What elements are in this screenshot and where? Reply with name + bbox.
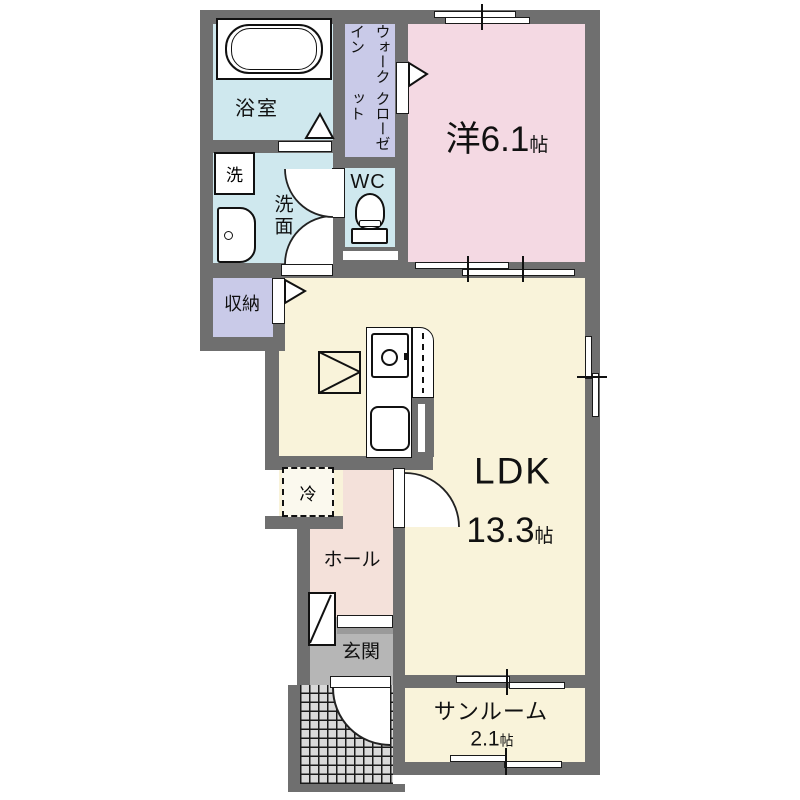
- storage-label: 収納: [224, 295, 260, 315]
- ldk-size-label: 13.3帖: [466, 512, 553, 551]
- symbols-overlay: [0, 0, 800, 800]
- wic-label-line1: ウォークイン: [344, 24, 395, 91]
- western-room-unit: 帖: [529, 135, 548, 156]
- ldk-label: LDK: [474, 452, 552, 493]
- storage-door-triangle-icon: [285, 280, 305, 303]
- wc-label: WC: [350, 171, 385, 193]
- wic-door-triangle-icon: [409, 63, 427, 86]
- cabinet-symbol-line2: [319, 372, 360, 393]
- sunroom-unit: 帖: [500, 732, 514, 748]
- cabinet-symbol-line1: [319, 352, 360, 372]
- sunroom-size: 2.1: [470, 727, 499, 750]
- sunroom-size-label: 2.1帖: [470, 727, 513, 750]
- wic-label: ウォークイン クローゼット: [343, 24, 395, 157]
- western-room-name: 洋6.1: [446, 120, 530, 159]
- floorplan-canvas: 洗 冷: [0, 0, 800, 800]
- ldk-unit: 帖: [535, 526, 554, 547]
- cabinet-symbol-icon: [319, 352, 360, 393]
- washroom-label: 洗面: [271, 194, 292, 238]
- western-room-label: 洋6.1帖: [446, 121, 549, 160]
- bath-label: 浴室: [235, 98, 279, 120]
- wic-label-line2: クローゼット: [344, 91, 395, 158]
- entrance-label: 玄関: [342, 643, 380, 664]
- bath-door-triangle-icon: [306, 114, 333, 138]
- ldk-size: 13.3: [466, 511, 534, 550]
- sunroom-label: サンルーム: [434, 700, 548, 724]
- shoe-cabinet-diagonal: [310, 595, 331, 643]
- hall-label: ホール: [323, 551, 380, 572]
